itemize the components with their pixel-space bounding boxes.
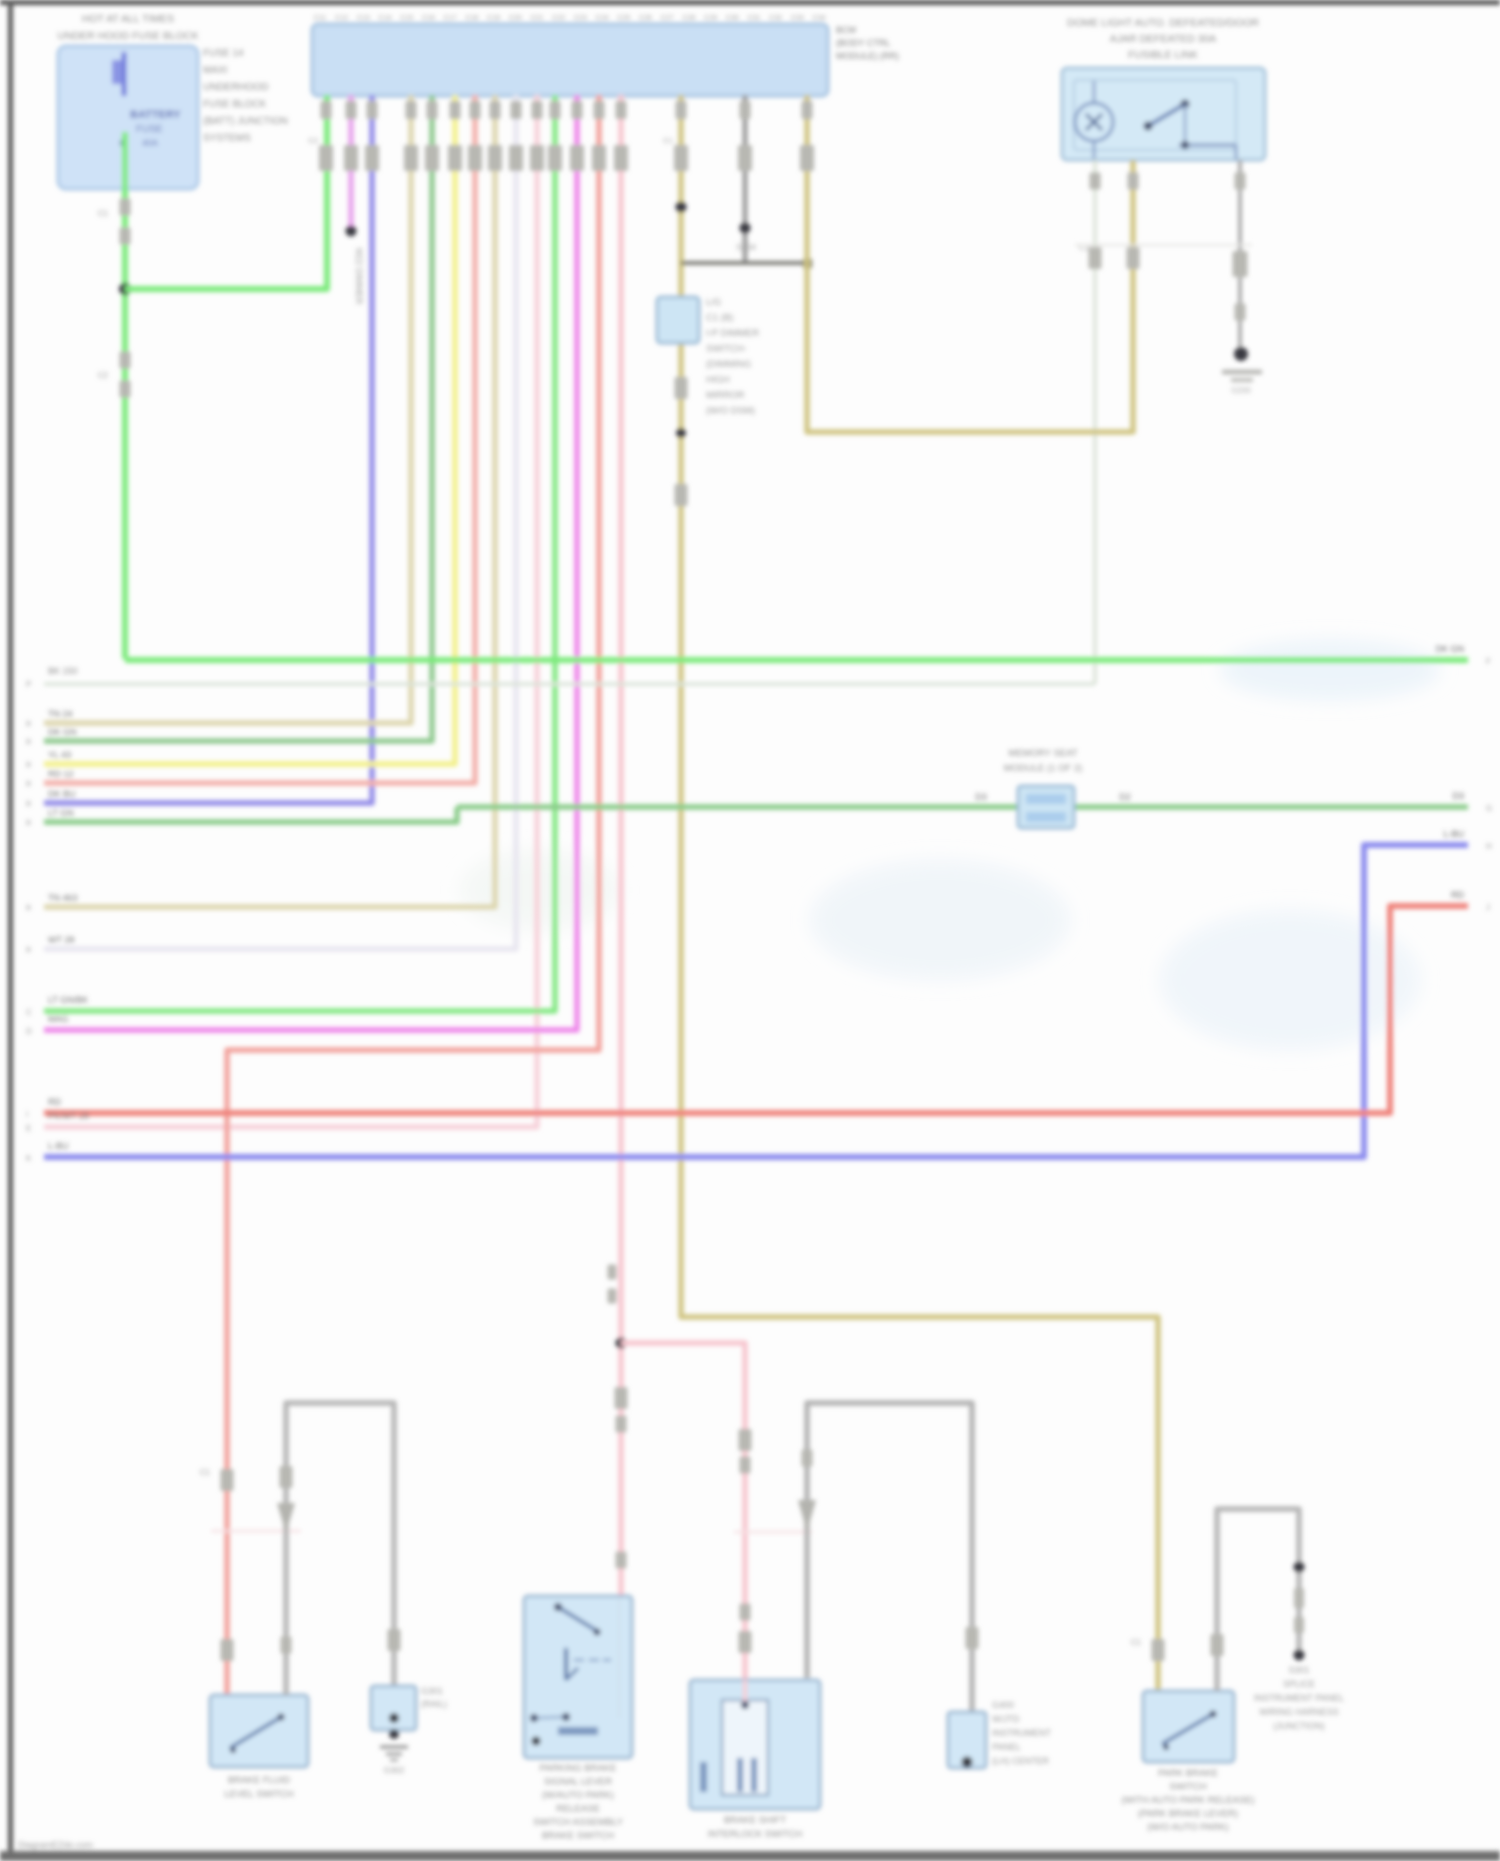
svg-text:WT 28: WT 28 (48, 935, 74, 945)
svg-text:C2: C2 (308, 136, 318, 145)
svg-text:B: B (26, 903, 31, 912)
svg-text:C21: C21 (531, 15, 544, 22)
svg-text:DK BU: DK BU (48, 789, 76, 799)
svg-text:FUSE 14: FUSE 14 (203, 48, 244, 59)
svg-text:B: B (26, 818, 31, 827)
svg-text:C15: C15 (400, 15, 413, 22)
svg-text:TN 463: TN 463 (48, 893, 78, 903)
svg-text:C1 (B): C1 (B) (706, 313, 733, 324)
svg-text:D: D (26, 1027, 32, 1036)
svg-text:AJAR DEFEATED 30A: AJAR DEFEATED 30A (1110, 33, 1217, 45)
svg-text:C12: C12 (335, 15, 348, 22)
svg-text:G301: G301 (421, 1686, 443, 1696)
svg-text:HIGH: HIGH (706, 375, 730, 386)
svg-text:E: E (26, 1124, 31, 1133)
svg-text:G: G (1486, 804, 1492, 813)
svg-text:C25: C25 (617, 15, 630, 22)
svg-text:LT GN: LT GN (48, 808, 74, 818)
svg-text:F: F (1486, 657, 1491, 666)
svg-text:RD: RD (48, 1097, 61, 1107)
svg-text:DOME LIGHT AUTO. DEFEATED/DOOR: DOME LIGHT AUTO. DEFEATED/DOOR (1067, 17, 1259, 29)
svg-text:BRAKE SWITCH: BRAKE SWITCH (542, 1831, 614, 1842)
svg-text:RD 12: RD 12 (48, 769, 74, 779)
svg-text:MAXI: MAXI (203, 65, 227, 76)
svg-text:(PARK BRAKE LEVER): (PARK BRAKE LEVER) (1138, 1809, 1238, 1820)
svg-text:UNDERHOOD: UNDERHOOD (203, 82, 269, 93)
svg-text:UNDER HOOD FUSE BLOCK: UNDER HOOD FUSE BLOCK (57, 30, 198, 42)
svg-text:FUSE BLOCK: FUSE BLOCK (203, 99, 267, 110)
svg-text:(W/AUTO PARK): (W/AUTO PARK) (542, 1790, 614, 1801)
svg-text:(WITH AUTO PARK RELEASE): (WITH AUTO PARK RELEASE) (1121, 1795, 1254, 1806)
svg-text:SWITCH: SWITCH (1169, 1782, 1207, 1793)
svg-text:(W/O AUTO PARK): (W/O AUTO PARK) (1147, 1822, 1228, 1833)
svg-text:C17: C17 (444, 15, 457, 22)
svg-text:C16: C16 (422, 15, 435, 22)
svg-text:(BATT) JUNCTION: (BATT) JUNCTION (203, 116, 288, 127)
svg-text:C2: C2 (98, 371, 109, 380)
svg-text:RELEASE: RELEASE (556, 1804, 600, 1815)
svg-text:PARK BRAKE: PARK BRAKE (1158, 1768, 1218, 1779)
svg-text:I-P DIMMER: I-P DIMMER (706, 328, 759, 339)
svg-text:SWITCH-: SWITCH- (706, 344, 747, 355)
svg-text:DK GN: DK GN (48, 727, 77, 737)
svg-text:C27: C27 (661, 15, 674, 22)
svg-text:C22: C22 (552, 15, 565, 22)
svg-text:S204: S204 (736, 242, 756, 252)
svg-text:C19: C19 (487, 15, 500, 22)
svg-text:C1: C1 (200, 1468, 211, 1477)
svg-text:(LH) CENTER: (LH) CENTER (992, 1756, 1050, 1766)
svg-text:B: B (26, 945, 31, 954)
svg-text:BK 150: BK 150 (48, 666, 78, 676)
svg-text:S301: S301 (1288, 1665, 1309, 1675)
svg-text:B: B (26, 799, 31, 808)
svg-text:BCM: BCM (836, 25, 856, 35)
svg-text:40A: 40A (142, 138, 158, 148)
svg-text:B: B (26, 719, 31, 728)
svg-text:WIRING HARNESS: WIRING HARNESS (1259, 1707, 1339, 1717)
svg-text:C: C (26, 1008, 32, 1017)
svg-text:K: K (26, 1154, 32, 1163)
svg-text:G400: G400 (992, 1700, 1014, 1710)
svg-text:C29: C29 (704, 15, 717, 22)
svg-text:L-BU: L-BU (48, 1141, 69, 1151)
svg-text:C34: C34 (813, 15, 826, 22)
svg-text:LT GN/BK: LT GN/BK (48, 995, 88, 1005)
svg-text:W/JTD: W/JTD (992, 1714, 1020, 1724)
svg-text:SIGNAL LEVER: SIGNAL LEVER (544, 1777, 612, 1788)
svg-text:(JUNCTION): (JUNCTION) (1273, 1721, 1325, 1731)
svg-text:C20: C20 (509, 15, 522, 22)
svg-text:C14: C14 (379, 15, 392, 22)
svg-text:G302: G302 (384, 1765, 405, 1775)
svg-text:C1: C1 (98, 209, 109, 218)
svg-text:I: I (26, 1110, 28, 1119)
svg-text:(RAIL): (RAIL) (421, 1699, 447, 1709)
svg-text:FUSIBLE LINK: FUSIBLE LINK (1128, 49, 1198, 61)
svg-text:BATTERY: BATTERY (130, 109, 181, 121)
svg-text:TN 24: TN 24 (48, 709, 73, 719)
svg-text:L/G: L/G (706, 297, 721, 308)
svg-text:BRAKE SHIFT: BRAKE SHIFT (724, 1815, 786, 1826)
svg-text:C23: C23 (574, 15, 587, 22)
svg-text:MIRROR: MIRROR (706, 390, 745, 401)
svg-text:M22 DIMMER: M22 DIMMER (354, 248, 364, 305)
svg-text:H: H (1486, 842, 1492, 851)
svg-text:MAG: MAG (48, 1014, 69, 1024)
svg-text:B: B (26, 779, 31, 788)
svg-text:INTERLOCK SWITCH: INTERLOCK SWITCH (708, 1829, 803, 1840)
svg-text:PARKING BRAKE: PARKING BRAKE (540, 1763, 617, 1774)
svg-text:L-BU: L-BU (1443, 829, 1464, 839)
svg-text:INSTRUMENT: INSTRUMENT (992, 1728, 1051, 1738)
svg-text:MEMORY SEAT: MEMORY SEAT (1008, 748, 1077, 759)
svg-text:C30: C30 (726, 15, 739, 22)
svg-text:C26: C26 (639, 15, 652, 22)
svg-text:PK/WT 28: PK/WT 28 (48, 1111, 89, 1121)
svg-text:YL 43: YL 43 (48, 750, 71, 760)
svg-text:(BODY CTRL: (BODY CTRL (836, 38, 890, 48)
svg-text:C1: C1 (1131, 1638, 1142, 1647)
svg-text:P: P (26, 680, 31, 689)
svg-text:D2: D2 (1119, 792, 1131, 802)
svg-text:INSTRUMENT PANEL: INSTRUMENT PANEL (1254, 1693, 1344, 1703)
svg-text:HOT AT ALL TIMES: HOT AT ALL TIMES (82, 13, 174, 25)
svg-text:(DIMMING: (DIMMING (706, 359, 751, 370)
svg-text:FUSE: FUSE (136, 124, 163, 135)
svg-text:C33: C33 (791, 15, 804, 22)
svg-text:C11: C11 (314, 15, 326, 22)
svg-text:PANEL: PANEL (992, 1742, 1021, 1752)
svg-text:G200: G200 (1231, 386, 1251, 395)
svg-text:LEVEL SWITCH: LEVEL SWITCH (224, 1789, 293, 1800)
svg-text:B: B (26, 760, 31, 769)
svg-text:C1: C1 (663, 136, 673, 145)
svg-text:BRAKE FLUID: BRAKE FLUID (228, 1775, 290, 1786)
svg-text:RD: RD (1451, 890, 1464, 900)
svg-text:DK GN: DK GN (1435, 644, 1464, 654)
svg-text:DiagramEZdo.com: DiagramEZdo.com (18, 1840, 93, 1850)
svg-text:SPLICE: SPLICE (1283, 1679, 1315, 1689)
svg-text:SWITCH ASSEMBLY: SWITCH ASSEMBLY (533, 1817, 624, 1828)
svg-text:(W/O DSM): (W/O DSM) (706, 406, 755, 417)
svg-text:B: B (26, 737, 31, 746)
svg-text:MODULE (1 OF 2): MODULE (1 OF 2) (1004, 763, 1083, 774)
svg-text:MODULE) (RR): MODULE) (RR) (836, 51, 899, 61)
svg-text:C32: C32 (769, 15, 782, 22)
svg-text:J: J (1486, 903, 1490, 912)
svg-text:C24: C24 (596, 15, 609, 22)
svg-text:C28: C28 (682, 15, 695, 22)
svg-text:D3: D3 (1452, 791, 1464, 801)
svg-text:C18: C18 (465, 15, 478, 22)
svg-text:SYSTEMS: SYSTEMS (203, 133, 251, 144)
svg-text:C31: C31 (748, 15, 761, 22)
svg-text:C13: C13 (357, 15, 370, 22)
svg-text:D3: D3 (975, 792, 987, 802)
